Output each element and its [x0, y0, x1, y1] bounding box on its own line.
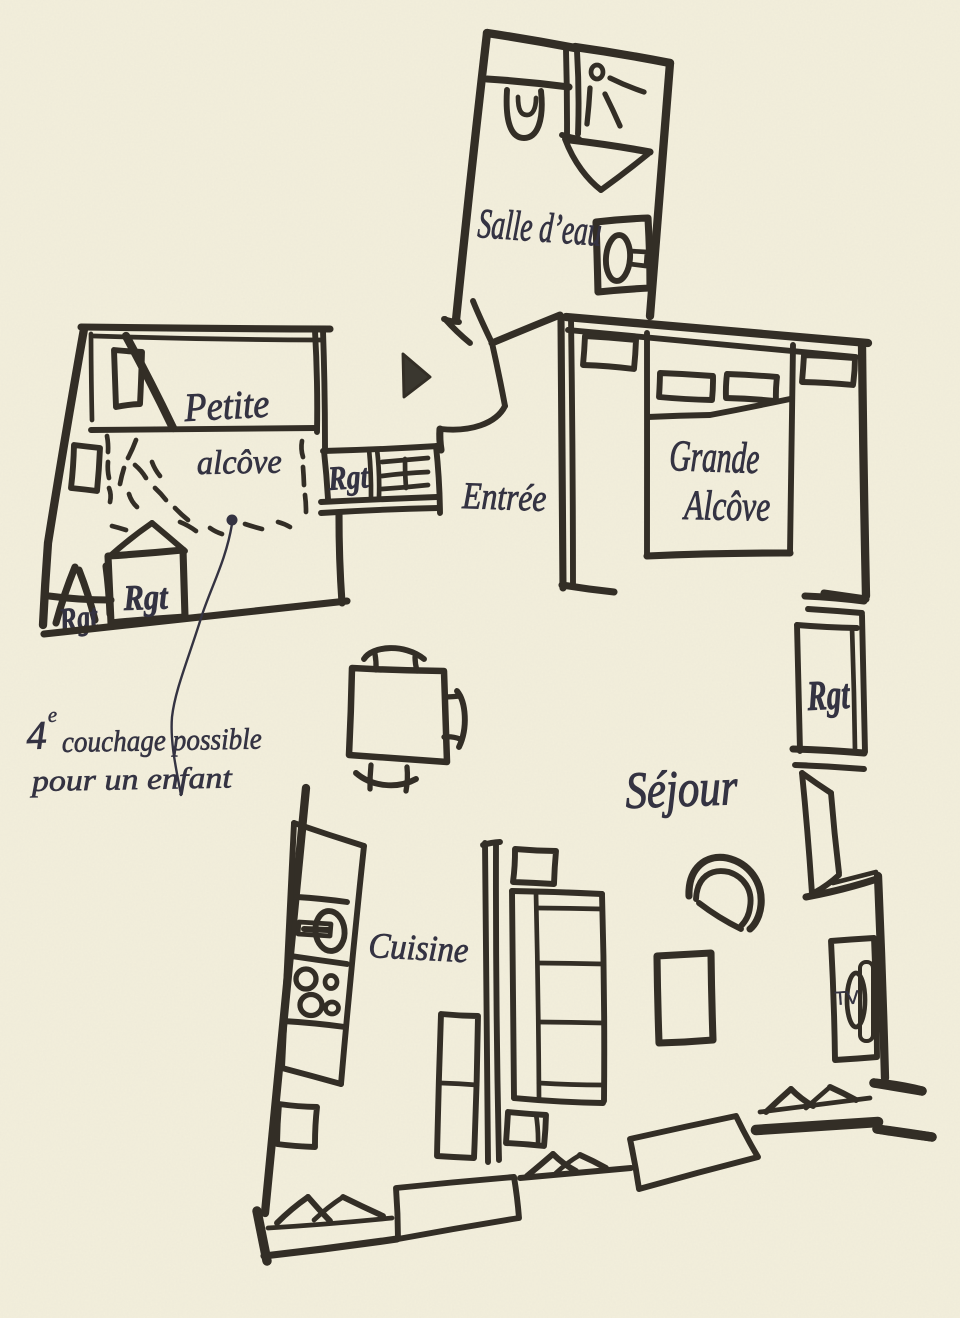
svg-text:TV: TV: [834, 987, 860, 1010]
svg-text:alcôve: alcôve: [196, 444, 282, 482]
svg-text:Alcôve: Alcôve: [682, 483, 771, 531]
svg-text:Grande: Grande: [669, 431, 761, 483]
svg-text:Séjour: Séjour: [624, 759, 739, 820]
svg-text:pour un enfant: pour un enfant: [29, 762, 233, 799]
svg-text:Salle d’eau: Salle d’eau: [476, 201, 603, 256]
svg-text:e: e: [47, 703, 57, 727]
svg-text:4: 4: [26, 712, 48, 758]
svg-text:Petite: Petite: [182, 381, 270, 430]
svg-text:Rgt: Rgt: [805, 672, 851, 720]
svg-text:couchage possible: couchage possible: [62, 723, 263, 759]
svg-text:Rgt: Rgt: [326, 458, 371, 498]
svg-text:Entrée: Entrée: [461, 475, 547, 520]
svg-text:Rgt: Rgt: [122, 576, 169, 618]
svg-text:Cuisine: Cuisine: [368, 925, 470, 970]
